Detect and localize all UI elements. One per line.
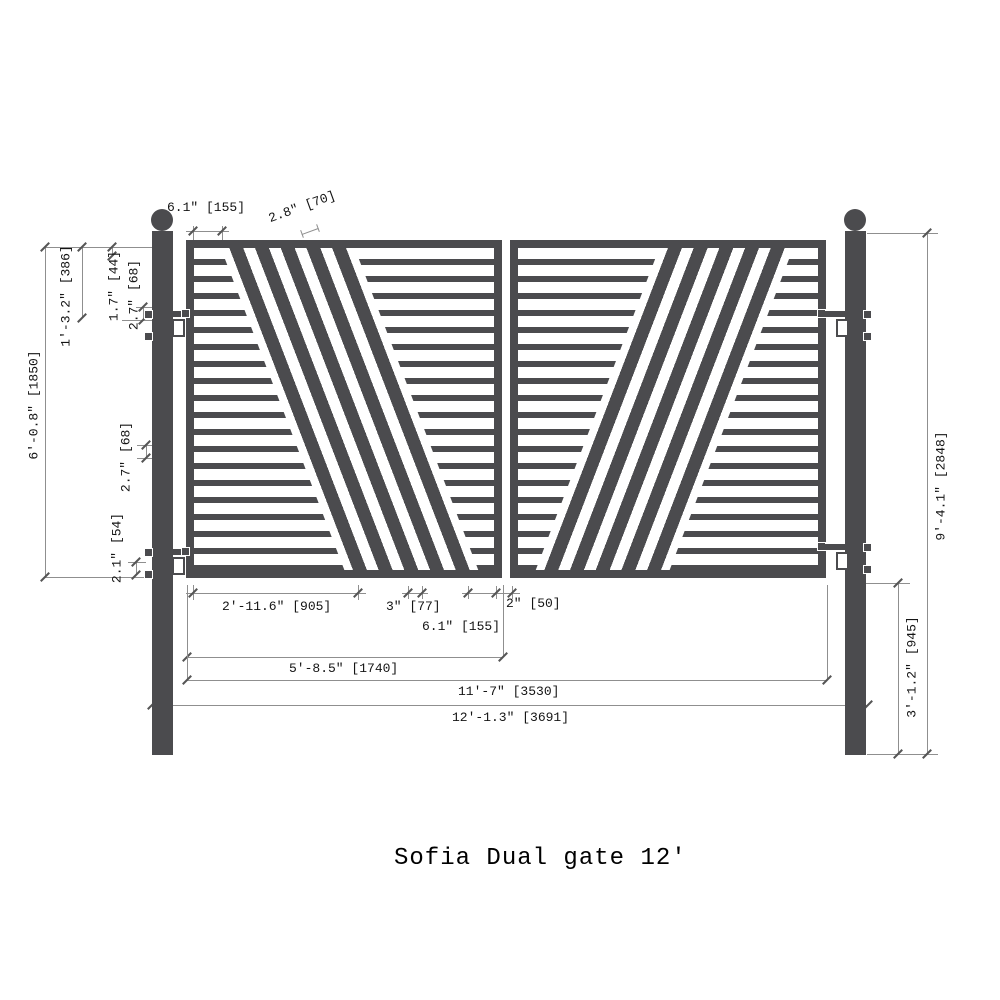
hinge-bolt [818,543,825,550]
dim-line-opening-width [187,680,827,681]
hinge-bolt [145,571,152,578]
hinge-bolt [864,544,871,551]
extension-line [45,577,152,578]
hinge-bolt [145,311,152,318]
dim-label-top-inset: 6.1" [155] [167,200,245,215]
extension-line [503,585,504,657]
extension-line [827,585,828,680]
dim-line-overall-height [927,233,928,754]
dim-bracket-stripe-width [300,224,320,238]
dim-line-top-to-hinge [82,247,83,318]
dim-label-overall-width: 12'-1.3" [3691] [452,710,569,725]
hinge-barrel [836,552,849,570]
dim-line-below-gate [898,583,899,754]
drawing-title: Sofia Dual gate 12' [394,845,687,872]
hinge-barrel [172,557,185,575]
hinge-bolt [182,310,189,317]
hinge-bolt [182,548,189,555]
dim-label-opening-width: 11'-7" [3530] [458,684,559,699]
dim-label-leaf-gap: 2" [50] [506,596,561,611]
hinge-strap [825,311,846,317]
hinge-bolt [145,549,152,556]
dim-line-overall-width [152,705,868,706]
dim-label-leaf-width: 5'-8.5" [1740] [289,661,398,676]
left-gate-panel [186,240,502,578]
dim-line-bottom-left-span [186,593,366,594]
right-post [845,231,866,755]
extension-line [187,585,188,680]
hinge-barrel [836,319,849,337]
dim-label-bottom-inset: 6.1" [155] [422,619,500,634]
hinge-bolt [818,310,825,317]
hinge-bolt [864,333,871,340]
right-post-ball-cap [844,209,866,231]
hinge-barrel [172,319,185,337]
left-post [152,231,173,755]
hinge-bolt [864,311,871,318]
gate-dimension-drawing: 6.1" [155] 2.8" [70] 1'-3.2" [386] 1.7" … [0,0,1000,1000]
dim-line-leaf-height [45,247,46,577]
hinge-bolt [864,566,871,573]
dim-line-leaf-width [187,657,503,658]
dim-label-bottom-left-span: 2'-11.6" [905] [222,599,331,614]
dim-label-stripe-gap: 3" [77] [386,599,441,614]
hinge-bolt [145,333,152,340]
hinge-strap [825,544,846,550]
right-gate-panel [510,240,826,578]
